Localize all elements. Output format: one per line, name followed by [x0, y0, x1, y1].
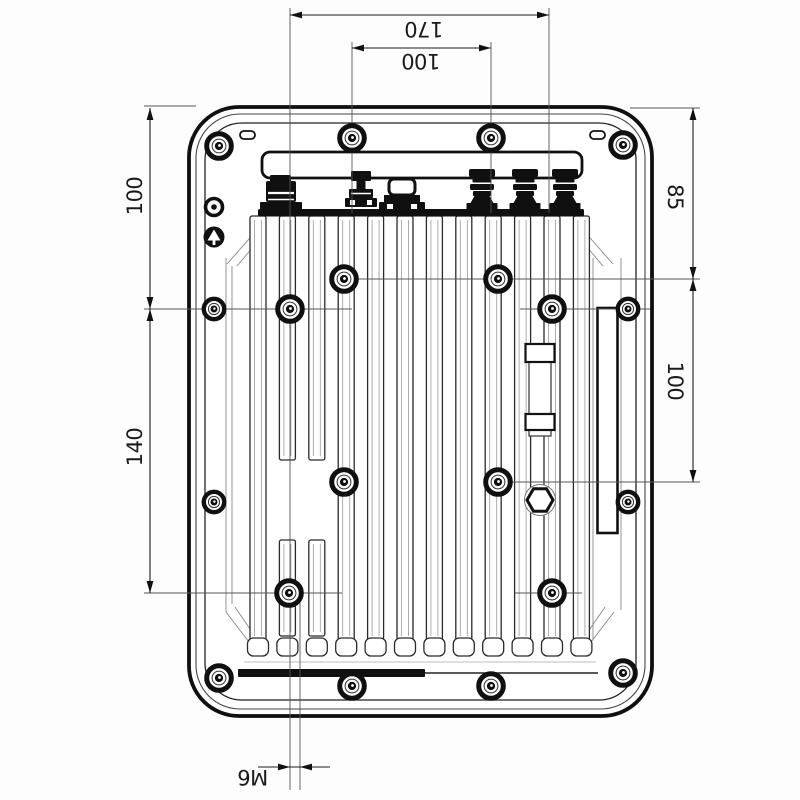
corner-screw — [611, 661, 636, 686]
edge-screw — [618, 492, 638, 512]
drawing-page: 170 100 100 140 85 100 M6 — [0, 0, 800, 800]
heatsink-fin — [424, 216, 445, 656]
dimension-right-upper: 85 — [663, 108, 696, 279]
face-screw — [277, 581, 302, 606]
face-screw — [486, 267, 511, 292]
earth-ground-icon — [204, 227, 225, 248]
face-screw — [332, 470, 357, 495]
heatsink-fin — [365, 216, 386, 656]
dimension-top-inner: 100 — [352, 45, 491, 73]
face-screw — [540, 581, 565, 606]
dimension-bottom-thread: M6 — [238, 764, 330, 789]
heatsink-fin — [248, 216, 269, 656]
dim-label-bottom-thread: M6 — [238, 765, 269, 789]
din-rail-clip — [526, 344, 555, 436]
face-screw — [332, 267, 357, 292]
dim-label-left-upper: 100 — [123, 177, 147, 216]
technical-drawing-canvas: 170 100 100 140 85 100 M6 — [0, 0, 800, 800]
edge-screw — [204, 299, 224, 319]
dimension-top-outer: 170 — [290, 12, 549, 41]
dim-label-top-inner: 100 — [402, 49, 441, 73]
bottom-screw — [340, 674, 365, 699]
heatsink-fin — [453, 216, 474, 656]
hex-nut — [525, 485, 556, 516]
top-left-slot — [240, 131, 255, 139]
heatsink-fin — [571, 216, 592, 656]
top-right-slot — [590, 131, 605, 139]
heatsink-fin-split — [306, 216, 327, 656]
edge-screw — [618, 299, 638, 319]
dim-label-left-lower: 140 — [123, 428, 147, 467]
ground-point-icon — [206, 199, 223, 216]
face-screw — [278, 297, 303, 322]
edge-screw — [204, 492, 224, 512]
side-mounting-plate — [598, 308, 618, 533]
corner-screw — [207, 666, 232, 691]
corner-screw — [207, 134, 232, 159]
face-screw — [486, 470, 511, 495]
dim-label-right-upper: 85 — [663, 184, 687, 210]
top-screw — [340, 126, 365, 151]
dimension-left-upper: 100 — [123, 108, 153, 309]
dimension-right-mid: 100 — [663, 279, 696, 482]
face-screw — [540, 297, 565, 322]
heatsink-fin — [395, 216, 416, 656]
top-screw — [479, 126, 504, 151]
corner-screw — [611, 133, 636, 158]
dim-label-top-outer: 170 — [405, 17, 444, 41]
dim-label-right-mid: 100 — [663, 362, 687, 401]
dimension-left-lower: 140 — [123, 309, 153, 593]
bottom-screw — [479, 674, 504, 699]
